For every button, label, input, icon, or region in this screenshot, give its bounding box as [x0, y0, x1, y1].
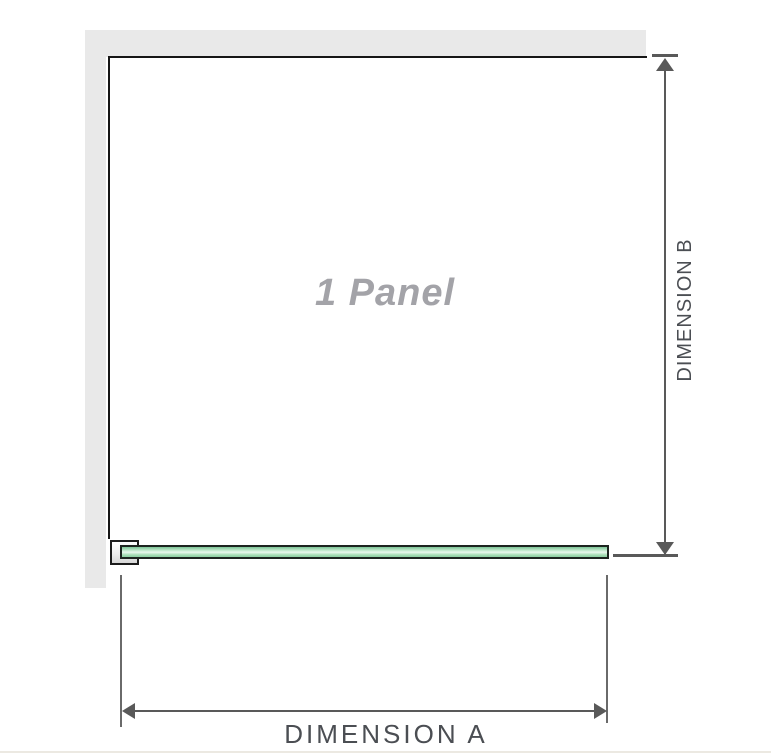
panel-left-edge: [108, 56, 110, 539]
panel-count-label: 1 Panel: [235, 272, 535, 315]
dimension-a-label: DIMENSION A: [235, 719, 537, 750]
dimension-b-label: DIMENSION B: [673, 200, 697, 420]
arrow-up-icon: [656, 58, 674, 71]
shower-panel-diagram: 1 Panel DIMENSION B DIMENSION A: [0, 0, 771, 755]
wall-top-band: [85, 30, 646, 57]
arrow-right-icon: [594, 703, 607, 719]
wall-left-band: [85, 30, 106, 588]
glass-panel-bar: [120, 545, 609, 559]
panel-top-edge: [108, 56, 647, 58]
bottom-divider: [0, 751, 771, 753]
arrow-left-icon: [122, 703, 135, 719]
dimension-b-top-tick: [652, 54, 678, 57]
dimension-a-line: [124, 710, 605, 712]
dimension-a-right-extension-line: [606, 575, 608, 723]
dimension-b-line: [664, 60, 666, 554]
arrow-down-icon: [656, 542, 674, 555]
